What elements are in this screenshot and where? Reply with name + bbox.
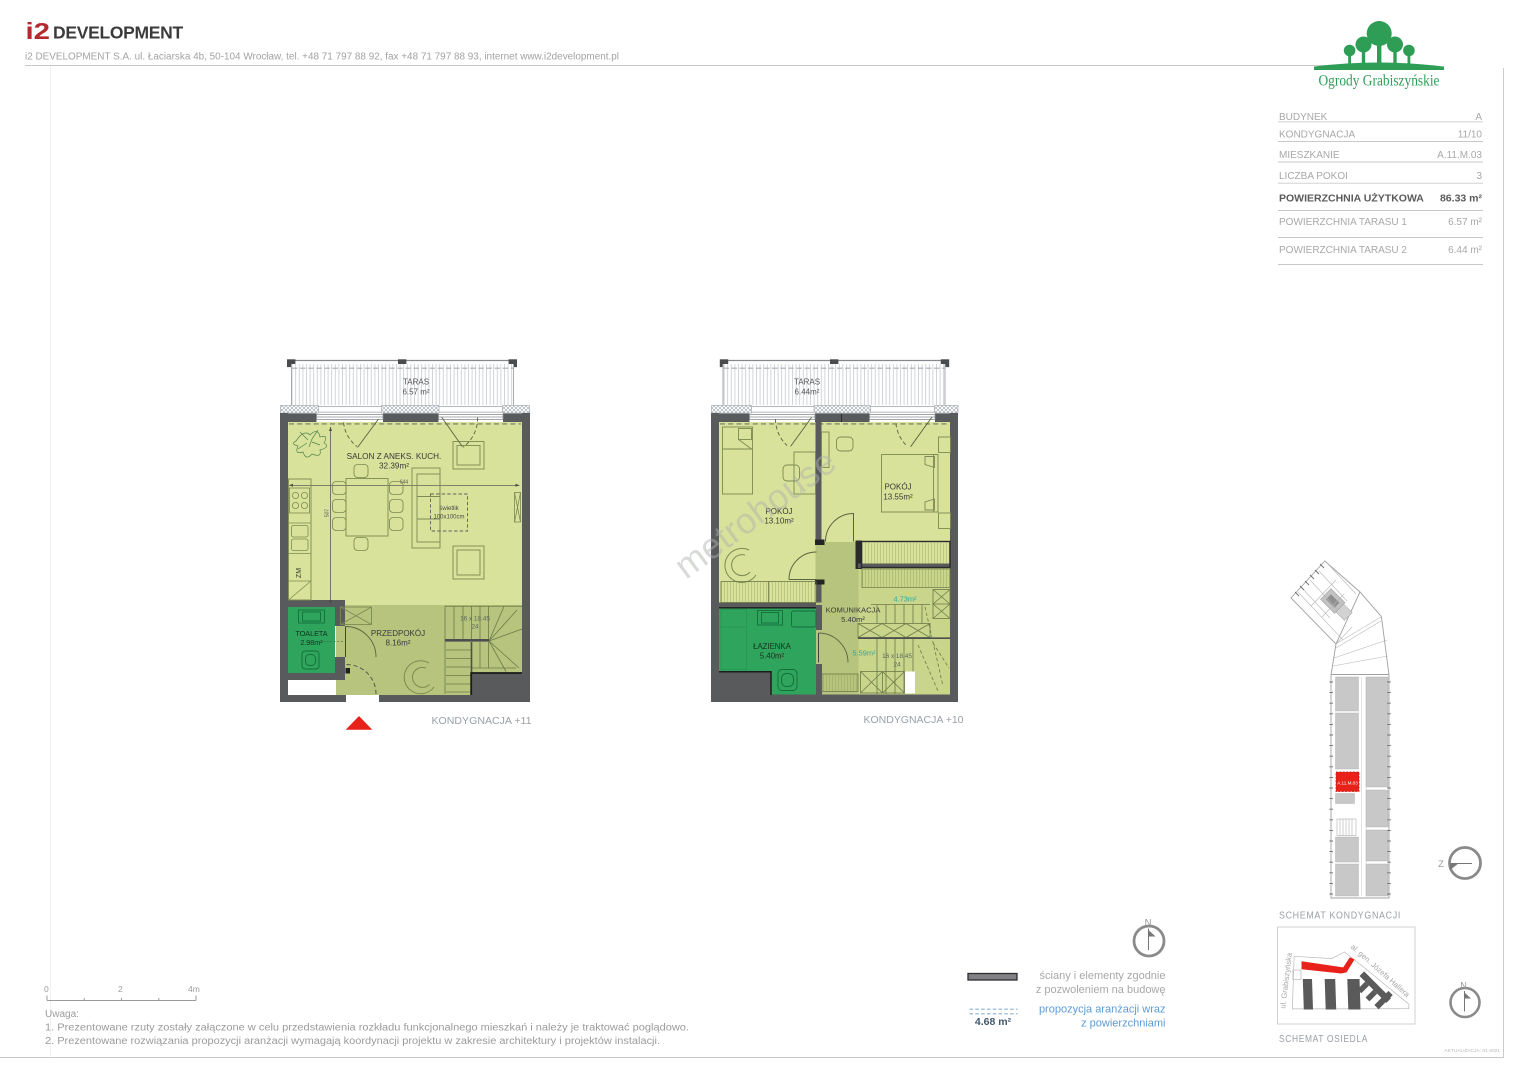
svg-text:TARAS: TARAS [794,378,820,387]
svg-text:5.59m²: 5.59m² [852,649,876,658]
svg-text:4m: 4m [188,984,200,994]
svg-text:świetlik: świetlik [439,506,459,512]
svg-text:13.55m²: 13.55m² [883,493,913,502]
svg-text:MIESZKANIE: MIESZKANIE [1279,150,1340,161]
svg-text:16 x 18,45: 16 x 18,45 [882,653,912,660]
svg-text:z powierzchniami: z powierzchniami [1081,1018,1165,1030]
svg-text:ściany i elementy zgodnie: ściany i elementy zgodnie [1040,970,1166,982]
svg-text:6.44 m²: 6.44 m² [1448,245,1483,256]
svg-text:SALON Z ANEKS. KUCH.: SALON Z ANEKS. KUCH. [347,452,442,461]
svg-text:5.40m²: 5.40m² [841,615,865,624]
svg-text:POWIERZCHNIA UŻYTKOWA: POWIERZCHNIA UŻYTKOWA [1279,192,1424,205]
svg-text:2.98m²: 2.98m² [300,638,323,647]
svg-text:6.57 m²: 6.57 m² [402,388,429,397]
svg-text:i2 DEVELOPMENT S.A. ul. Łaciar: i2 DEVELOPMENT S.A. ul. Łaciarska 4b, 50… [25,52,619,63]
svg-text:propozycja aranżacji wraz: propozycja aranżacji wraz [1039,1004,1166,1016]
svg-text:16 x 18.45: 16 x 18.45 [460,616,490,623]
svg-text:2. Prezentowane rozwiązania pr: 2. Prezentowane rozwiązania propozycji a… [45,1036,660,1047]
svg-text:ZM: ZM [296,568,303,578]
svg-text:86.33 m²: 86.33 m² [1440,193,1483,205]
svg-text:Uwaga:: Uwaga: [45,1009,79,1020]
svg-text:POWIERZCHNIA TARASU 1: POWIERZCHNIA TARASU 1 [1279,217,1407,228]
svg-text:A.11.M.03: A.11.M.03 [1437,150,1482,161]
svg-text:BUDYNEK: BUDYNEK [1279,112,1328,123]
svg-text:5.40m²: 5.40m² [760,652,785,661]
svg-text:SCHEMAT OSIEDLA: SCHEMAT OSIEDLA [1279,1033,1368,1045]
svg-text:4.68 m²: 4.68 m² [975,1016,1012,1028]
svg-text:POWIERZCHNIA TARASU 2: POWIERZCHNIA TARASU 2 [1279,245,1407,256]
svg-text:2: 2 [118,984,123,994]
svg-text:32.39m²: 32.39m² [379,462,409,471]
svg-text:1. Prezentowane rzuty zostały: 1. Prezentowane rzuty zostały załączone … [45,1023,689,1034]
svg-text:ŁAZIENKA: ŁAZIENKA [753,642,791,651]
svg-text:A.11.M.03: A.11.M.03 [1337,781,1358,786]
svg-text:SCHEMAT KONDYGNACJI: SCHEMAT KONDYGNACJI [1279,910,1401,922]
svg-text:PRZEDPOKÓJ: PRZEDPOKÓJ [371,629,425,638]
svg-text:KOMUNIKACJA: KOMUNIKACJA [826,606,882,615]
svg-text:TARAS: TARAS [403,378,429,387]
svg-text:6.44m²: 6.44m² [795,388,820,397]
svg-text:z pozwoleniem na budowę: z pozwoleniem na budowę [1036,984,1166,996]
svg-text:24: 24 [893,662,901,669]
svg-text:DEVELOPMENT: DEVELOPMENT [53,23,184,43]
svg-text:i2: i2 [26,18,51,44]
svg-text:8.16m²: 8.16m² [386,639,411,648]
svg-text:0: 0 [44,984,49,994]
svg-text:AKTUALIZACJA: 01-2021: AKTUALIZACJA: 01-2021 [1445,1048,1501,1054]
svg-text:Ogrody Grabiszyńskie: Ogrody Grabiszyńskie [1319,73,1440,90]
svg-text:24: 24 [471,624,479,631]
svg-text:4.73m²: 4.73m² [893,595,917,604]
svg-text:KONDYGNACJA +11: KONDYGNACJA +11 [432,715,532,727]
svg-text:11/10: 11/10 [1458,130,1483,141]
svg-text:6.57 m²: 6.57 m² [1448,217,1483,228]
svg-text:507: 507 [325,509,331,518]
svg-text:N: N [1460,981,1467,991]
svg-text:LICZBA POKOI: LICZBA POKOI [1279,171,1348,182]
svg-text:Z: Z [1438,859,1444,870]
svg-text:N: N [1145,918,1152,929]
svg-text:644: 644 [400,480,409,486]
svg-text:3: 3 [1476,171,1482,182]
svg-text:KONDYGNACJA +10: KONDYGNACJA +10 [864,714,964,726]
svg-text:KONDYGNACJA: KONDYGNACJA [1279,130,1355,141]
svg-text:A: A [1475,112,1482,123]
svg-text:100x100cm: 100x100cm [433,515,464,521]
svg-text:POKÓJ: POKÓJ [884,483,911,492]
svg-text:TOALETA: TOALETA [295,629,327,638]
